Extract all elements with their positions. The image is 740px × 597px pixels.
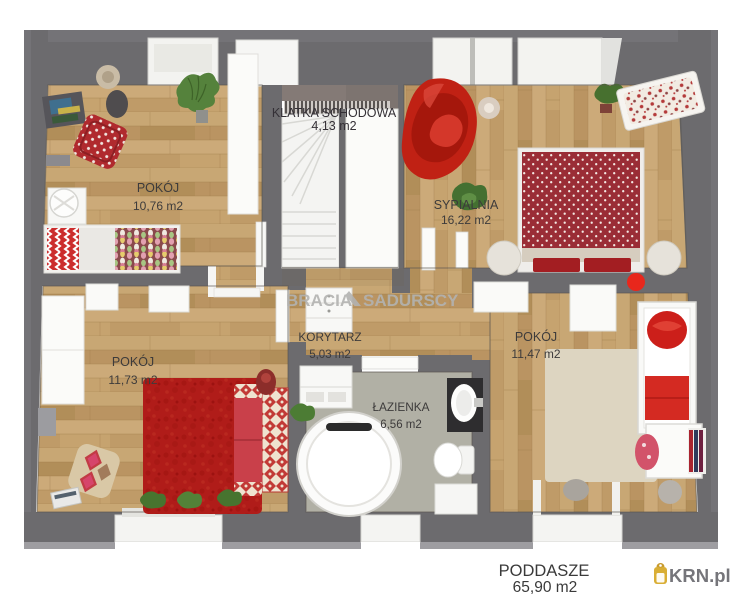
svg-text:6,56 m2: 6,56 m2 <box>380 419 422 431</box>
svg-text:PODDASZE: PODDASZE <box>499 562 590 580</box>
svg-text:10,76 m2: 10,76 m2 <box>133 199 183 213</box>
svg-text:11,73 m2: 11,73 m2 <box>108 373 157 387</box>
svg-text:5,03 m2: 5,03 m2 <box>309 349 351 361</box>
svg-text:KORYTARZ: KORYTARZ <box>298 330 361 344</box>
svg-text:SADURSCY: SADURSCY <box>363 291 459 310</box>
svg-text:11,47 m2: 11,47 m2 <box>511 347 560 361</box>
svg-text:16,22 m2: 16,22 m2 <box>441 213 491 227</box>
svg-text:POKÓJ: POKÓJ <box>515 329 557 344</box>
svg-text:POKÓJ: POKÓJ <box>137 180 179 195</box>
svg-text:ŁAZIENKA: ŁAZIENKA <box>372 400 429 414</box>
svg-text:KLATKA SCHODOWA: KLATKA SCHODOWA <box>272 106 397 120</box>
svg-text:4,13 m2: 4,13 m2 <box>311 119 356 133</box>
svg-text:65,90 m2: 65,90 m2 <box>513 579 578 596</box>
svg-text:KRN.pl: KRN.pl <box>669 565 731 586</box>
svg-text:POKÓJ: POKÓJ <box>112 354 154 369</box>
svg-text:BRACIA: BRACIA <box>286 291 352 310</box>
svg-text:SYPIALNIA: SYPIALNIA <box>434 198 499 212</box>
